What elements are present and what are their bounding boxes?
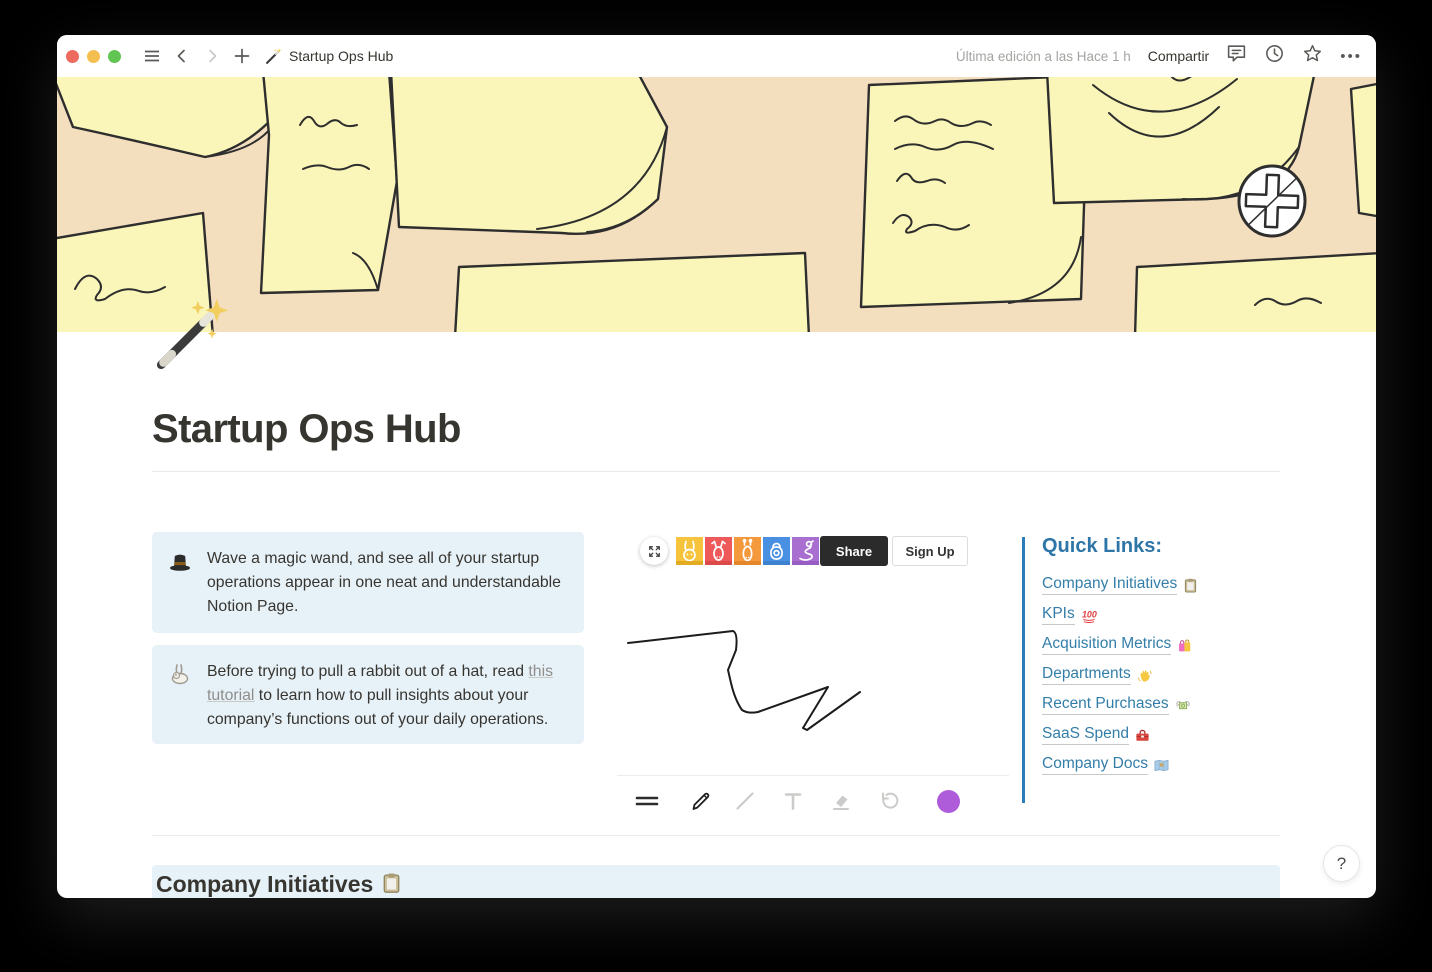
link-departments[interactable]: Departments — [1042, 665, 1152, 685]
callout-rabbit: Before trying to pull a rabbit out of a … — [152, 645, 584, 744]
favorite-star-icon[interactable] — [1302, 43, 1323, 69]
last-edited-label: Última edición a las Hace 1 h — [956, 49, 1131, 64]
waving-hand-emoji-icon — [1137, 668, 1152, 683]
link-saas-spend[interactable]: SaaS Spend — [1042, 725, 1150, 745]
cover-illustration — [57, 77, 1376, 332]
callout-magic-wand: Wave a magic wand, and see all of your s… — [152, 532, 584, 633]
link-label: KPIs — [1042, 605, 1075, 625]
more-options-icon[interactable]: ••• — [1340, 48, 1362, 65]
cover-badge-icon — [1238, 165, 1306, 237]
zoom-window-button[interactable] — [108, 50, 121, 63]
clipboard-emoji-icon — [381, 871, 402, 895]
link-company-docs[interactable]: Company Docs — [1042, 755, 1169, 775]
whiteboard-tools — [617, 781, 1017, 827]
hundred-points-emoji-icon: 100 — [1081, 608, 1097, 623]
magic-wand-icon — [153, 295, 231, 373]
whiteboard-scribble — [617, 569, 1017, 774]
clipboard-emoji-icon — [1183, 578, 1198, 593]
text-tool-icon[interactable] — [777, 783, 809, 819]
sidebar-menu-icon[interactable] — [139, 43, 165, 69]
divider — [152, 835, 1280, 836]
whiteboard-signup-button[interactable]: Sign Up — [892, 536, 968, 566]
undo-icon[interactable] — [873, 783, 905, 819]
snake-avatar-icon — [792, 537, 819, 565]
deer-avatar-icon — [705, 537, 732, 565]
section-heading-label: Company Initiatives — [156, 871, 373, 897]
close-window-button[interactable] — [66, 50, 79, 63]
svg-text:100: 100 — [1082, 609, 1097, 619]
help-button[interactable]: ? — [1323, 845, 1360, 882]
titlebar: Startup Ops Hub Última edición a las Hac… — [57, 35, 1376, 77]
link-acquisition-metrics[interactable]: Acquisition Metrics — [1042, 635, 1192, 655]
quick-links-heading: Quick Links: — [1042, 535, 1162, 558]
section-heading-company-initiatives[interactable]: Company Initiatives — [152, 865, 1280, 898]
callout-text: Before trying to pull a rabbit out of a … — [207, 660, 568, 729]
link-company-initiatives[interactable]: Company Initiatives — [1042, 575, 1198, 595]
breadcrumb[interactable]: Startup Ops Hub — [265, 48, 393, 65]
shopping-bags-emoji-icon — [1177, 638, 1192, 653]
link-label: Company Initiatives — [1042, 575, 1177, 595]
divider — [152, 471, 1280, 472]
forward-icon[interactable] — [199, 43, 225, 69]
quote-bar — [1022, 537, 1025, 803]
link-kpis[interactable]: KPIs 100 — [1042, 605, 1097, 625]
world-map-emoji-icon — [1154, 758, 1169, 773]
whiteboard-toolbar: Share Sign Up — [617, 535, 1017, 569]
page-icon-magic-wand[interactable] — [153, 295, 231, 373]
link-label: Recent Purchases — [1042, 695, 1169, 715]
page-title: Startup Ops Hub — [152, 407, 461, 452]
notion-window: Startup Ops Hub Última edición a las Hac… — [57, 35, 1376, 898]
callout-text-after: to learn how to pull insights about your… — [207, 687, 548, 728]
expand-fullscreen-icon[interactable] — [640, 537, 668, 565]
presence-avatars — [676, 537, 819, 565]
rabbit-avatar-icon — [676, 537, 703, 565]
history-clock-icon[interactable] — [1264, 43, 1285, 69]
link-label: Acquisition Metrics — [1042, 635, 1171, 655]
desktop-backdrop: Startup Ops Hub Última edición a las Hac… — [0, 0, 1432, 972]
top-hat-icon — [168, 547, 192, 618]
titlebar-page-title: Startup Ops Hub — [289, 48, 393, 64]
comments-icon[interactable] — [1226, 43, 1247, 69]
traffic-lights — [66, 50, 121, 63]
link-label: Company Docs — [1042, 755, 1148, 775]
callout-text: Wave a magic wand, and see all of your s… — [207, 547, 568, 618]
pencil-tool-icon[interactable] — [685, 783, 717, 819]
whiteboard-share-button[interactable]: Share — [820, 536, 888, 566]
whiteboard-toolbar-divider — [617, 775, 1009, 776]
new-tab-icon[interactable] — [229, 43, 255, 69]
page-cover — [57, 77, 1376, 332]
minimize-window-button[interactable] — [87, 50, 100, 63]
eraser-tool-icon[interactable] — [825, 783, 857, 819]
link-label: Departments — [1042, 665, 1131, 685]
back-icon[interactable] — [169, 43, 195, 69]
stroke-width-menu-icon[interactable] — [631, 783, 663, 819]
link-recent-purchases[interactable]: Recent Purchases — [1042, 695, 1191, 715]
money-with-wings-emoji-icon — [1175, 698, 1191, 713]
whiteboard-drawing-canvas[interactable] — [617, 569, 1017, 774]
pen-color-swatch[interactable] — [937, 790, 960, 813]
callout-text-before: Before trying to pull a rabbit out of a … — [207, 663, 528, 680]
magic-wand-icon — [265, 48, 282, 65]
whiteboard-embed: Share Sign Up — [617, 535, 1017, 827]
toolbox-emoji-icon — [1135, 728, 1150, 743]
rabbit-icon — [168, 660, 192, 729]
link-label: SaaS Spend — [1042, 725, 1129, 745]
line-tool-icon[interactable] — [729, 783, 761, 819]
hedgehog-avatar-icon — [763, 537, 790, 565]
share-page-button[interactable]: Compartir — [1148, 48, 1209, 64]
giraffe-avatar-icon — [734, 537, 761, 565]
